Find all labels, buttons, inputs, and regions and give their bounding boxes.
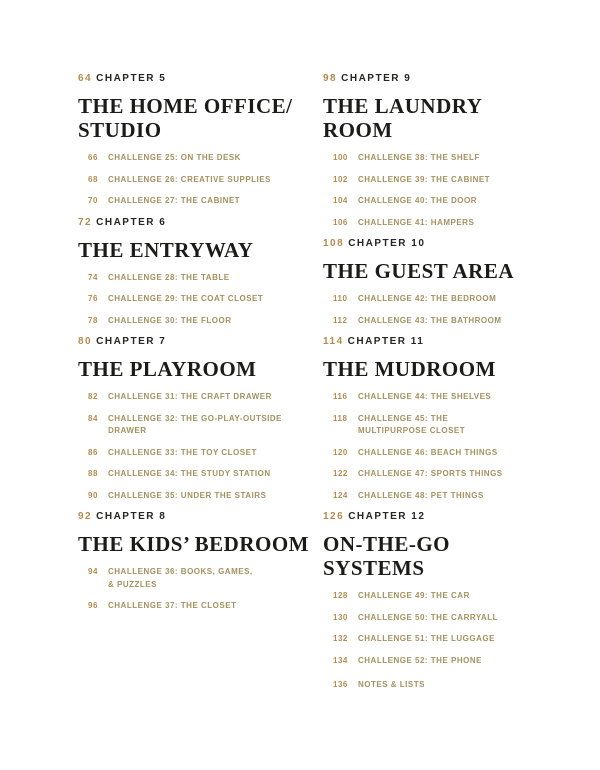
entry-page-number: 132 [333,633,358,646]
toc-entry: 90CHALLENGE 35: UNDER THE STAIRS [78,490,310,503]
entry-page-number: 110 [333,293,358,306]
entry-page-number: 90 [88,490,108,503]
entry-label: CHALLENGE 41: HAMPERS [358,217,474,230]
entry-label: CHALLENGE 37: THE CLOSET [108,600,236,613]
chapter-block: 92CHAPTER 8THE KIDS’ BEDROOM94CHALLENGE … [78,511,310,613]
entry-label: CHALLENGE 49: THE CAR [358,590,470,603]
toc-entry: 122CHALLENGE 47: SPORTS THINGS [323,468,570,481]
toc-entry: 134CHALLENGE 52: THE PHONE [323,655,570,668]
chapter-page-number: 98 [323,73,337,84]
chapter-page-number: 114 [323,336,344,347]
chapter-page-number: 92 [78,511,92,522]
entry-label: CHALLENGE 38: THE SHELF [358,152,480,165]
entry-page-number: 70 [88,195,108,208]
entry-page-number: 82 [88,391,108,404]
chapter-block: 108CHAPTER 10THE GUEST AREA110CHALLENGE … [323,238,570,327]
chapter-heading: 108CHAPTER 10 [323,238,570,249]
chapter-title: THE ENTRYWAY [78,238,310,262]
toc-column-left: 64CHAPTER 5THE HOME OFFICE/ STUDIO66CHAL… [78,73,310,622]
entry-label: CHALLENGE 40: THE DOOR [358,195,477,208]
entry-label: CHALLENGE 47: SPORTS THINGS [358,468,503,481]
entry-page-number: 76 [88,293,108,306]
entry-page-number: 106 [333,217,358,230]
chapter-label: CHAPTER 12 [348,511,425,522]
toc-entry: 68CHALLENGE 26: CREATIVE SUPPLIES [78,174,310,187]
entry-label: CHALLENGE 31: THE CRAFT DRAWER [108,391,272,404]
entry-page-number: 74 [88,272,108,285]
chapter-title: THE GUEST AREA [323,259,570,283]
entry-page-number: 78 [88,315,108,328]
entry-page-number: 112 [333,315,358,328]
entry-label: CHALLENGE 27: THE CABINET [108,195,240,208]
entry-page-number: 118 [333,413,358,426]
toc-page: 64CHAPTER 5THE HOME OFFICE/ STUDIO66CHAL… [0,0,600,770]
entry-page-number: 128 [333,590,358,603]
chapter-heading: 114CHAPTER 11 [323,336,570,347]
entry-page-number: 96 [88,600,108,613]
chapter-page-number: 126 [323,511,344,522]
toc-entry: 120CHALLENGE 46: BEACH THINGS [323,447,570,460]
toc-entry: 128CHALLENGE 49: THE CAR [323,590,570,603]
toc-entry: 82CHALLENGE 31: THE CRAFT DRAWER [78,391,310,404]
toc-entry: 86CHALLENGE 33: THE TOY CLOSET [78,447,310,460]
toc-entry: 76CHALLENGE 29: THE COAT CLOSET [78,293,310,306]
entry-label: CHALLENGE 39: THE CABINET [358,174,490,187]
chapter-heading: 80CHAPTER 7 [78,336,310,347]
entry-label: CHALLENGE 45: THE MULTIPURPOSE CLOSET [358,413,465,438]
entry-label: CHALLENGE 44: THE SHELVES [358,391,491,404]
toc-entry: 130CHALLENGE 50: THE CARRYALL [323,612,570,625]
entry-label: CHALLENGE 46: BEACH THINGS [358,447,498,460]
challenge-list: 74CHALLENGE 28: THE TABLE76CHALLENGE 29:… [78,272,310,328]
chapter-title: ON-THE-GO SYSTEMS [323,532,570,580]
entry-label: CHALLENGE 48: PET THINGS [358,490,484,503]
entry-label: CHALLENGE 52: THE PHONE [358,655,482,668]
entry-label: CHALLENGE 28: THE TABLE [108,272,230,285]
chapter-title: THE HOME OFFICE/ STUDIO [78,94,310,142]
entry-label: CHALLENGE 32: THE GO-PLAY-OUTSIDE DRAWER [108,413,282,438]
chapter-heading: 98CHAPTER 9 [323,73,570,84]
toc-entry: 78CHALLENGE 30: THE FLOOR [78,315,310,328]
chapter-title: THE MUDROOM [323,357,570,381]
toc-entry: 116CHALLENGE 44: THE SHELVES [323,391,570,404]
chapter-page-number: 80 [78,336,92,347]
entry-page-number: 94 [88,566,108,579]
chapter-heading: 126CHAPTER 12 [323,511,570,522]
chapter-label: CHAPTER 11 [348,336,425,347]
entry-page-number: 104 [333,195,358,208]
entry-page-number: 86 [88,447,108,460]
entry-label: CHALLENGE 33: THE TOY CLOSET [108,447,257,460]
notes-lists-entry: 136 NOTES & LISTS [323,679,570,692]
toc-entry: 100CHALLENGE 38: THE SHELF [323,152,570,165]
challenge-list: 66CHALLENGE 25: ON THE DESK68CHALLENGE 2… [78,152,310,208]
entry-label: CHALLENGE 51: THE LUGGAGE [358,633,495,646]
entry-page-number: 66 [88,152,108,165]
chapter-block: 98CHAPTER 9THE LAUNDRY ROOM100CHALLENGE … [323,73,570,229]
toc-entry: 66CHALLENGE 25: ON THE DESK [78,152,310,165]
toc-entry: 124CHALLENGE 48: PET THINGS [323,490,570,503]
entry-page-number: 102 [333,174,358,187]
chapter-heading: 72CHAPTER 6 [78,217,310,228]
chapter-block: 126CHAPTER 12ON-THE-GO SYSTEMS128CHALLEN… [323,511,570,667]
entry-label: CHALLENGE 26: CREATIVE SUPPLIES [108,174,271,187]
chapter-title: THE PLAYROOM [78,357,310,381]
toc-entry: 102CHALLENGE 39: THE CABINET [323,174,570,187]
toc-entry: 106CHALLENGE 41: HAMPERS [323,217,570,230]
challenge-list: 116CHALLENGE 44: THE SHELVES118CHALLENGE… [323,391,570,502]
entry-page-number: 122 [333,468,358,481]
entry-label: CHALLENGE 35: UNDER THE STAIRS [108,490,266,503]
toc-entry: 104CHALLENGE 40: THE DOOR [323,195,570,208]
entry-page-number: 134 [333,655,358,668]
toc-entry: 70CHALLENGE 27: THE CABINET [78,195,310,208]
chapter-page-number: 64 [78,73,92,84]
entry-page-number: 88 [88,468,108,481]
chapter-block: 114CHAPTER 11THE MUDROOM116CHALLENGE 44:… [323,336,570,502]
challenge-list: 128CHALLENGE 49: THE CAR130CHALLENGE 50:… [323,590,570,667]
entry-page-number: 130 [333,612,358,625]
chapter-list: 64CHAPTER 5THE HOME OFFICE/ STUDIO66CHAL… [78,73,310,613]
toc-entry: 110CHALLENGE 42: THE BEDROOM [323,293,570,306]
chapter-label: CHAPTER 9 [341,73,411,84]
entry-label: CHALLENGE 34: THE STUDY STATION [108,468,271,481]
chapter-label: CHAPTER 7 [96,336,166,347]
entry-label: CHALLENGE 25: ON THE DESK [108,152,241,165]
chapter-label: CHAPTER 8 [96,511,166,522]
chapter-label: CHAPTER 10 [348,238,425,249]
entry-label: CHALLENGE 42: THE BEDROOM [358,293,496,306]
toc-entry: 94CHALLENGE 36: BOOKS, GAMES, & PUZZLES [78,566,310,591]
chapter-title: THE LAUNDRY ROOM [323,94,570,142]
chapter-heading: 64CHAPTER 5 [78,73,310,84]
entry-page-number: 100 [333,152,358,165]
toc-columns: 64CHAPTER 5THE HOME OFFICE/ STUDIO66CHAL… [78,73,570,701]
chapter-label: CHAPTER 6 [96,217,166,228]
challenge-list: 82CHALLENGE 31: THE CRAFT DRAWER84CHALLE… [78,391,310,502]
toc-entry: 132CHALLENGE 51: THE LUGGAGE [323,633,570,646]
challenge-list: 100CHALLENGE 38: THE SHELF102CHALLENGE 3… [323,152,570,229]
entry-label: CHALLENGE 30: THE FLOOR [108,315,232,328]
entry-page-number: 120 [333,447,358,460]
toc-entry: 88CHALLENGE 34: THE STUDY STATION [78,468,310,481]
challenge-list: 94CHALLENGE 36: BOOKS, GAMES, & PUZZLES9… [78,566,310,613]
toc-entry: 118CHALLENGE 45: THE MULTIPURPOSE CLOSET [323,413,570,438]
entry-label: CHALLENGE 50: THE CARRYALL [358,612,498,625]
entry-page-number: 84 [88,413,108,426]
toc-entry: 112CHALLENGE 43: THE BATHROOM [323,315,570,328]
challenge-list: 110CHALLENGE 42: THE BEDROOM112CHALLENGE… [323,293,570,327]
chapter-heading: 92CHAPTER 8 [78,511,310,522]
entry-label: CHALLENGE 29: THE COAT CLOSET [108,293,263,306]
toc-entry: 96CHALLENGE 37: THE CLOSET [78,600,310,613]
toc-column-right: 98CHAPTER 9THE LAUNDRY ROOM100CHALLENGE … [323,73,570,701]
entry-label: NOTES & LISTS [358,679,425,692]
entry-label: CHALLENGE 43: THE BATHROOM [358,315,502,328]
entry-label: CHALLENGE 36: BOOKS, GAMES, & PUZZLES [108,566,253,591]
toc-entry: 74CHALLENGE 28: THE TABLE [78,272,310,285]
toc-entry: 84CHALLENGE 32: THE GO-PLAY-OUTSIDE DRAW… [78,413,310,438]
entry-page-number: 116 [333,391,358,404]
entry-page-number: 136 [333,679,358,692]
chapter-title: THE KIDS’ BEDROOM [78,532,310,556]
entry-page-number: 68 [88,174,108,187]
chapter-list: 98CHAPTER 9THE LAUNDRY ROOM100CHALLENGE … [323,73,570,667]
entry-page-number: 124 [333,490,358,503]
chapter-page-number: 72 [78,217,92,228]
chapter-block: 64CHAPTER 5THE HOME OFFICE/ STUDIO66CHAL… [78,73,310,208]
chapter-block: 72CHAPTER 6THE ENTRYWAY74CHALLENGE 28: T… [78,217,310,328]
chapter-page-number: 108 [323,238,344,249]
chapter-label: CHAPTER 5 [96,73,166,84]
chapter-block: 80CHAPTER 7THE PLAYROOM82CHALLENGE 31: T… [78,336,310,502]
